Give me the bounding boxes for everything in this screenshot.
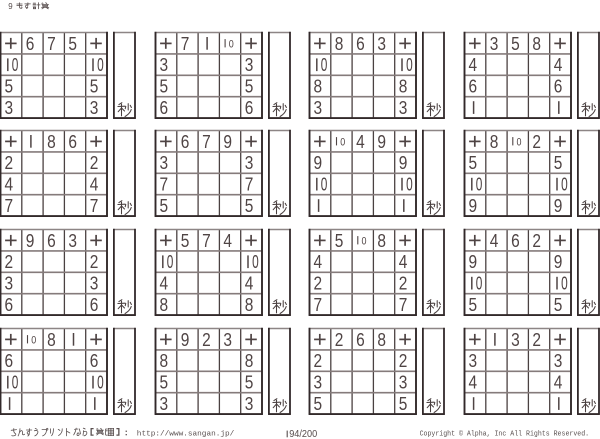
svg-text:0: 0 <box>561 175 568 195</box>
svg-text:8: 8 <box>244 351 253 371</box>
svg-text:3: 3 <box>223 330 232 350</box>
svg-text:3: 3 <box>5 274 14 294</box>
svg-text:7: 7 <box>313 295 322 315</box>
svg-text:4: 4 <box>489 231 498 251</box>
svg-text:5: 5 <box>468 295 477 315</box>
svg-text:0: 0 <box>12 55 19 75</box>
svg-text:0: 0 <box>561 274 568 294</box>
svg-text:7: 7 <box>398 295 407 315</box>
svg-text:0: 0 <box>340 137 345 149</box>
svg-text:4: 4 <box>553 55 562 75</box>
svg-text:0: 0 <box>97 373 104 393</box>
svg-text:2: 2 <box>398 274 407 294</box>
svg-text:8: 8 <box>159 295 168 315</box>
svg-text:5: 5 <box>90 77 99 97</box>
svg-text:6: 6 <box>5 295 14 315</box>
svg-text:5: 5 <box>398 394 407 414</box>
svg-text:6: 6 <box>69 132 78 152</box>
svg-text:8: 8 <box>47 330 56 350</box>
svg-text:7: 7 <box>180 34 189 54</box>
svg-text:8: 8 <box>377 330 386 350</box>
svg-text:Copyright © Alpha, Inc All Rig: Copyright © Alpha, Inc All Rights Reserv… <box>420 429 589 438</box>
svg-text:5: 5 <box>159 373 168 393</box>
svg-text:2: 2 <box>313 274 322 294</box>
svg-text:3: 3 <box>489 34 498 54</box>
svg-text:5: 5 <box>69 34 78 54</box>
svg-text:4: 4 <box>313 252 322 272</box>
svg-text:5: 5 <box>313 394 322 414</box>
svg-text:0: 0 <box>321 175 328 195</box>
svg-text:0: 0 <box>166 252 173 272</box>
svg-text:6: 6 <box>180 132 189 152</box>
svg-text:7: 7 <box>5 196 14 216</box>
svg-text:6: 6 <box>356 330 365 350</box>
svg-text:4: 4 <box>223 231 232 251</box>
svg-text:5: 5 <box>244 196 253 216</box>
svg-text:8: 8 <box>335 34 344 54</box>
svg-text:3: 3 <box>553 351 562 371</box>
svg-text:6: 6 <box>468 77 477 97</box>
svg-text:2: 2 <box>5 153 14 173</box>
svg-text:4: 4 <box>5 175 14 195</box>
svg-text:3: 3 <box>313 98 322 118</box>
svg-text:5: 5 <box>553 153 562 173</box>
svg-text:2: 2 <box>90 153 99 173</box>
svg-text:4: 4 <box>244 274 253 294</box>
svg-text:94/200: 94/200 <box>289 429 317 439</box>
svg-text:8: 8 <box>159 351 168 371</box>
svg-text:5: 5 <box>244 373 253 393</box>
svg-text:5: 5 <box>468 153 477 173</box>
svg-text:2: 2 <box>5 252 14 272</box>
svg-text:0: 0 <box>475 175 482 195</box>
svg-text:9: 9 <box>377 132 386 152</box>
svg-text:8: 8 <box>398 77 407 97</box>
svg-text:3: 3 <box>90 98 99 118</box>
svg-text:6: 6 <box>356 34 365 54</box>
svg-text:5: 5 <box>159 77 168 97</box>
svg-text:9: 9 <box>553 252 562 272</box>
svg-text:9: 9 <box>8 2 13 11</box>
svg-text:9: 9 <box>468 196 477 216</box>
svg-text:3: 3 <box>69 231 78 251</box>
svg-text:8: 8 <box>244 295 253 315</box>
svg-text:2: 2 <box>335 330 344 350</box>
svg-text:0: 0 <box>12 373 19 393</box>
svg-text:9: 9 <box>223 132 232 152</box>
svg-text:0: 0 <box>321 55 328 75</box>
svg-text:5: 5 <box>5 77 14 97</box>
svg-text:4: 4 <box>468 55 477 75</box>
svg-text:3: 3 <box>468 351 477 371</box>
svg-text:3: 3 <box>159 394 168 414</box>
svg-text:6: 6 <box>47 231 56 251</box>
svg-text:3: 3 <box>244 153 253 173</box>
svg-text:3: 3 <box>313 373 322 393</box>
svg-text:6: 6 <box>26 34 35 54</box>
svg-text:5: 5 <box>553 295 562 315</box>
svg-text:4: 4 <box>159 274 168 294</box>
svg-text:7: 7 <box>244 175 253 195</box>
svg-text:3: 3 <box>511 330 520 350</box>
svg-text:4: 4 <box>468 373 477 393</box>
svg-text:2: 2 <box>532 330 541 350</box>
svg-text:8: 8 <box>47 132 56 152</box>
svg-text:2: 2 <box>90 252 99 272</box>
svg-text:2: 2 <box>313 351 322 371</box>
svg-text:9: 9 <box>553 196 562 216</box>
svg-text:3: 3 <box>159 55 168 75</box>
svg-text:8: 8 <box>313 77 322 97</box>
svg-text:5: 5 <box>180 231 189 251</box>
svg-text:8: 8 <box>532 34 541 54</box>
svg-text:4: 4 <box>553 373 562 393</box>
svg-text:6: 6 <box>511 231 520 251</box>
svg-text:6: 6 <box>5 351 14 371</box>
svg-text:8: 8 <box>377 231 386 251</box>
svg-text:5: 5 <box>159 196 168 216</box>
svg-text:0: 0 <box>228 39 233 51</box>
svg-text:5: 5 <box>244 77 253 97</box>
svg-text:6: 6 <box>244 98 253 118</box>
svg-text:0: 0 <box>406 55 413 75</box>
svg-text:9: 9 <box>26 231 35 251</box>
svg-text:0: 0 <box>516 137 521 149</box>
svg-text:0: 0 <box>361 235 366 247</box>
svg-text:3: 3 <box>377 34 386 54</box>
svg-text:6: 6 <box>159 98 168 118</box>
svg-text:2: 2 <box>532 132 541 152</box>
svg-text:http://www.sangan.jp/: http://www.sangan.jp/ <box>137 430 235 438</box>
svg-text:4: 4 <box>398 252 407 272</box>
svg-text:8: 8 <box>489 132 498 152</box>
svg-text:7: 7 <box>47 34 56 54</box>
svg-text:3: 3 <box>244 55 253 75</box>
svg-text:2: 2 <box>532 231 541 251</box>
svg-text:9: 9 <box>313 153 322 173</box>
svg-text:2: 2 <box>398 351 407 371</box>
svg-text:0: 0 <box>252 252 259 272</box>
svg-text:0: 0 <box>475 274 482 294</box>
svg-text:2: 2 <box>202 330 211 350</box>
svg-text:4: 4 <box>356 132 365 152</box>
svg-text:3: 3 <box>5 98 14 118</box>
svg-text:3: 3 <box>159 153 168 173</box>
svg-text:7: 7 <box>159 175 168 195</box>
svg-text:6: 6 <box>553 77 562 97</box>
svg-text:3: 3 <box>398 373 407 393</box>
svg-text:6: 6 <box>90 295 99 315</box>
svg-text:9: 9 <box>468 252 477 272</box>
svg-text:0: 0 <box>406 175 413 195</box>
svg-text:9: 9 <box>398 153 407 173</box>
svg-text:9: 9 <box>180 330 189 350</box>
svg-text:3: 3 <box>244 394 253 414</box>
svg-text:0: 0 <box>97 55 104 75</box>
svg-text:5: 5 <box>335 231 344 251</box>
svg-text:3: 3 <box>90 274 99 294</box>
svg-text:4: 4 <box>90 175 99 195</box>
svg-text:3: 3 <box>398 98 407 118</box>
svg-text:7: 7 <box>202 231 211 251</box>
svg-text:5: 5 <box>511 34 520 54</box>
svg-text:7: 7 <box>202 132 211 152</box>
svg-text:0: 0 <box>31 334 36 346</box>
svg-text:7: 7 <box>90 196 99 216</box>
svg-text:6: 6 <box>90 351 99 371</box>
